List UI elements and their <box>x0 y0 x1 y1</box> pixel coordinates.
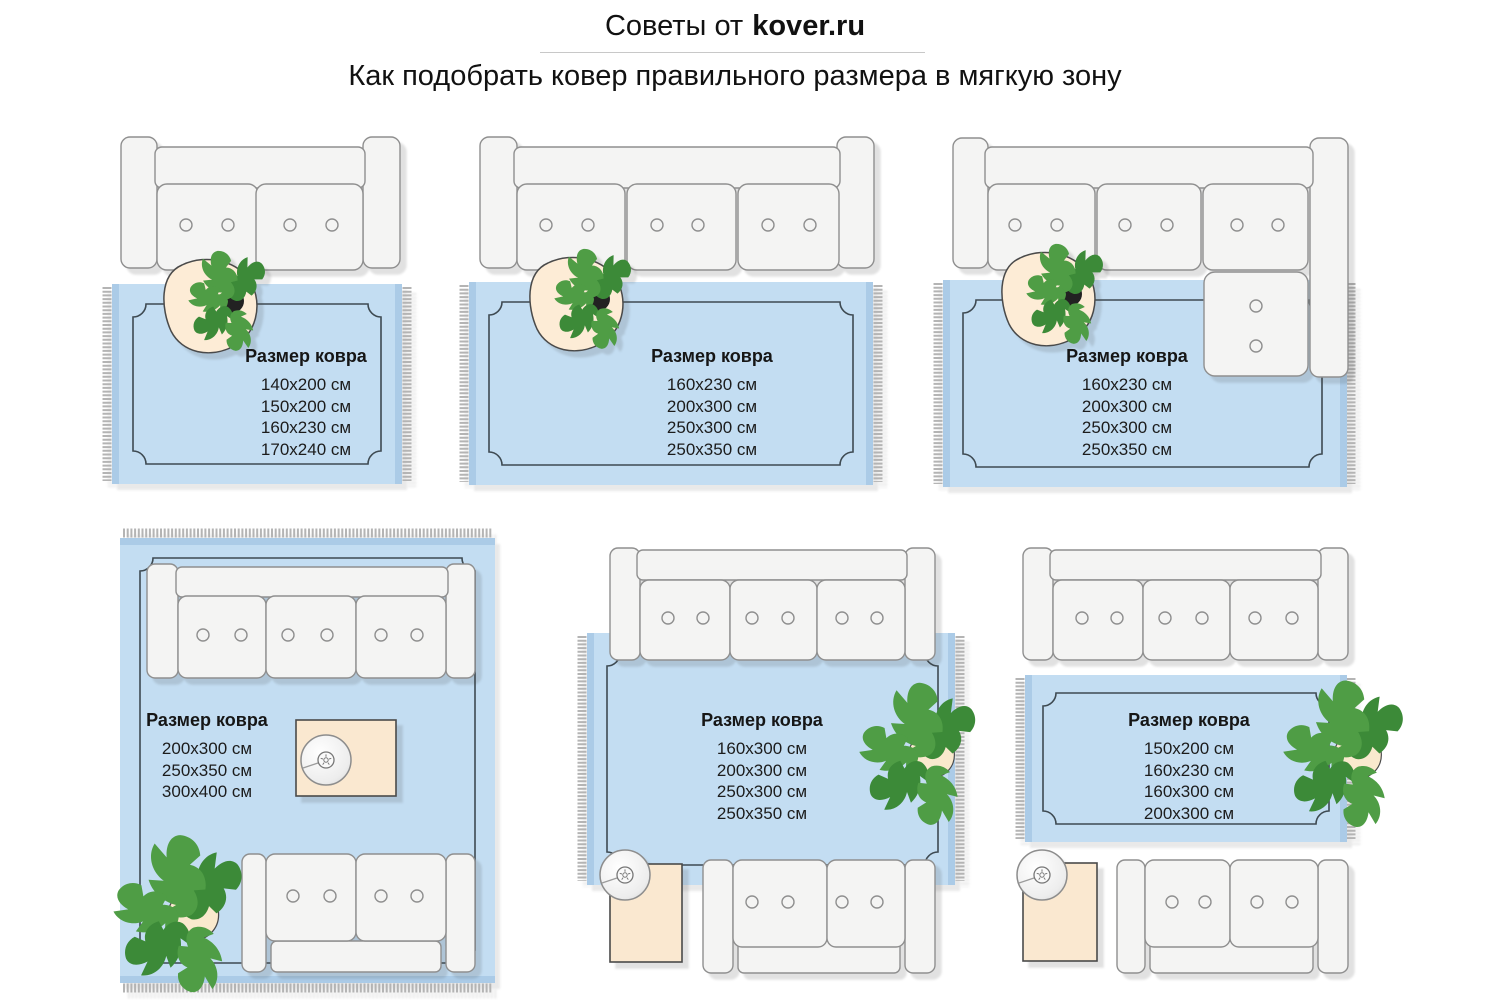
panel2-size-block: Размер ковра 160x230 см 200x300 см 250x3… <box>651 346 773 460</box>
panel5-side-table <box>600 850 682 962</box>
panel5-size-title: Размер ковра <box>701 710 823 730</box>
panel6-sofa-bottom <box>1117 860 1348 973</box>
panel6-size-title: Размер ковра <box>1128 710 1250 730</box>
brand-name: kover.ru <box>752 10 865 42</box>
panel1-sofa-two-seat <box>121 137 400 270</box>
round-tray-icon <box>600 850 650 900</box>
panel4-sofa-bottom <box>242 854 475 972</box>
size-line: 250x300 см <box>1066 417 1188 439</box>
panel5-sofa-top <box>610 548 935 660</box>
panel3-size-block: Размер ковра 160x230 см 200x300 см 250x3… <box>1066 346 1188 460</box>
panel6-size-block: Размер ковра 150x200 см 160x230 см 160x3… <box>1128 710 1250 824</box>
panel6-sofa-top <box>1023 548 1348 660</box>
panel2-size-title: Размер ковра <box>651 346 773 366</box>
page-title: Советы отkover.ru <box>0 9 1470 43</box>
rug-layout-artwork <box>0 0 1500 1000</box>
size-line: 150x200 см <box>245 396 367 418</box>
size-line: 160x300 см <box>701 738 823 760</box>
size-line: 200x300 см <box>701 760 823 782</box>
page-subtitle: Как подобрать ковер правильного размера … <box>0 58 1470 94</box>
size-line: 200x300 см <box>651 396 773 418</box>
round-tray-icon <box>301 735 351 785</box>
panel3-size-title: Размер ковра <box>1066 346 1188 366</box>
size-line: 300x400 см <box>146 781 268 803</box>
page-title-prefix: Советы от <box>605 10 743 42</box>
size-line: 160x230 см <box>651 374 773 396</box>
size-line: 170x240 см <box>245 439 367 461</box>
size-line: 140x200 см <box>245 374 367 396</box>
size-line: 250x350 см <box>1066 439 1188 461</box>
size-line: 250x300 см <box>701 781 823 803</box>
infographic-canvas: Советы отkover.ru Как подобрать ковер пр… <box>0 0 1500 1000</box>
panel1-size-title: Размер ковра <box>245 346 367 366</box>
size-line: 200x300 см <box>1128 803 1250 825</box>
size-line: 250x350 см <box>146 760 268 782</box>
size-line: 250x350 см <box>651 439 773 461</box>
panel1-size-block: Размер ковра 140x200 см 150x200 см 160x2… <box>245 346 367 460</box>
panel4-sofa-top <box>147 564 475 678</box>
title-divider <box>540 52 925 53</box>
panel4-size-title: Размер ковра <box>146 710 268 730</box>
size-line: 250x300 см <box>651 417 773 439</box>
size-line: 200x300 см <box>146 738 268 760</box>
round-tray-icon <box>1017 850 1067 900</box>
size-line: 160x230 см <box>1066 374 1188 396</box>
panel6-side-table <box>1017 850 1097 961</box>
panel2-sofa-three-seat <box>480 137 874 270</box>
size-line: 200x300 см <box>1066 396 1188 418</box>
panel4-size-block: Размер ковра 200x300 см 250x350 см 300x4… <box>146 710 268 803</box>
panel5-sofa-bottom <box>703 860 935 973</box>
panel5-size-block: Размер ковра 160x300 см 200x300 см 250x3… <box>701 710 823 824</box>
size-line: 160x230 см <box>245 417 367 439</box>
size-line: 250x350 см <box>701 803 823 825</box>
panel4-side-table <box>296 720 396 796</box>
size-line: 150x200 см <box>1128 738 1250 760</box>
size-line: 160x230 см <box>1128 760 1250 782</box>
size-line: 160x300 см <box>1128 781 1250 803</box>
